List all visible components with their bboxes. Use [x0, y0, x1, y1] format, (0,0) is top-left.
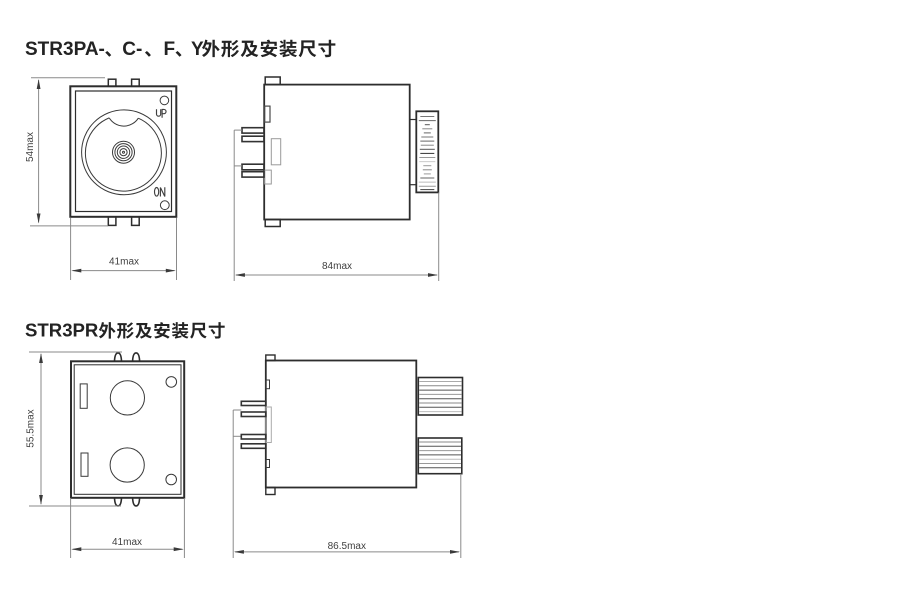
svg-text:54max: 54max	[25, 132, 36, 162]
svg-text:STR3PR: STR3PR	[25, 320, 99, 341]
svg-text:86.5max: 86.5max	[328, 541, 366, 552]
svg-text:41max: 41max	[112, 537, 142, 548]
svg-text:84max: 84max	[322, 261, 352, 272]
svg-text:55.5max: 55.5max	[26, 409, 37, 447]
svg-text:F: F	[164, 39, 176, 60]
svg-text:C-: C-	[122, 39, 142, 60]
svg-text:STR3PA-: STR3PA-	[25, 39, 105, 60]
svg-text:41max: 41max	[109, 257, 139, 268]
svg-text:Y: Y	[191, 39, 204, 60]
